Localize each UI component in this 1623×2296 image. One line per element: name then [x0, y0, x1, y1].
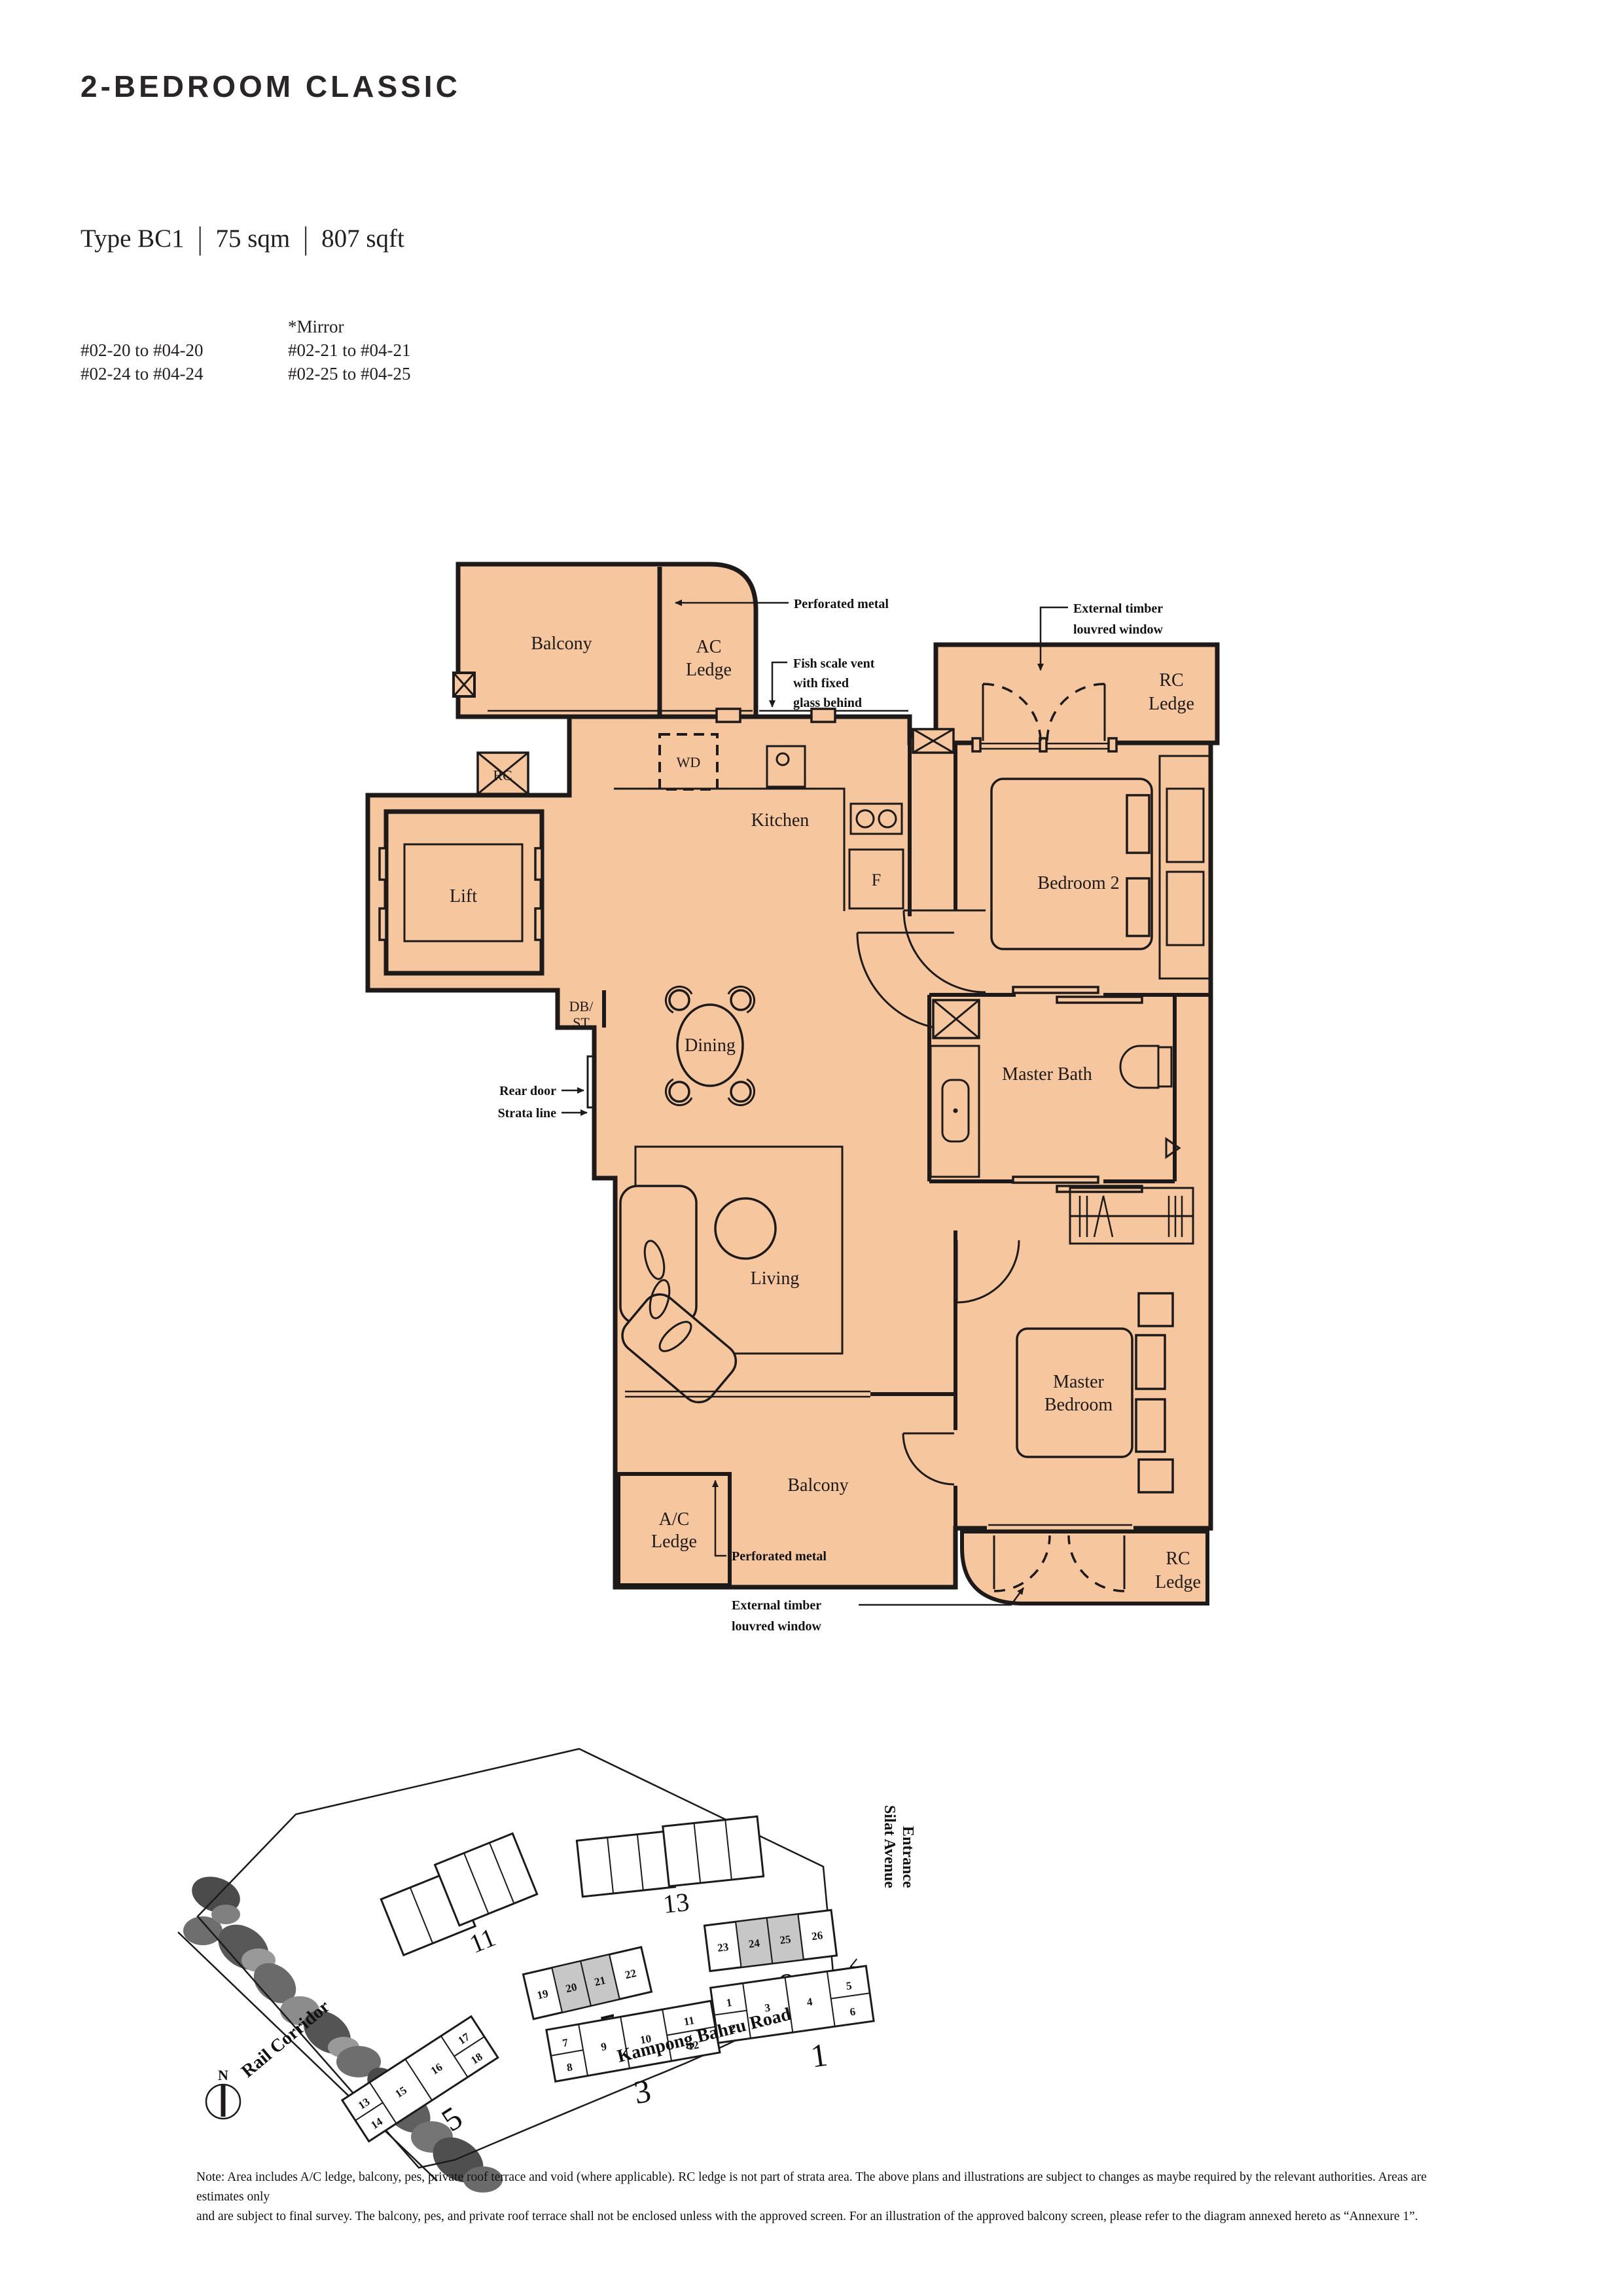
window-pier [717, 709, 740, 722]
window-post [1109, 738, 1116, 751]
balcony-top-label: Balcony [531, 634, 592, 654]
timber-br-label-2: louvred window [732, 1619, 821, 1634]
perforated-top-label: Perforated metal [794, 597, 889, 611]
rc-label: RC [493, 767, 512, 783]
dbst-label-2: ST [573, 1014, 590, 1031]
balcony-bottom-label: Balcony [787, 1475, 848, 1496]
unit-25: 25 [779, 1933, 791, 1946]
fish-scale-label-2: with fixed [793, 676, 849, 691]
ac-ledge-bottom-label-1: A/C [659, 1509, 690, 1530]
building-1-number: 1 [808, 2036, 830, 2075]
note-text: Note: Area includes A/C ledge, balcony, … [196, 2168, 1433, 2227]
window-post [972, 738, 980, 751]
entrance-label: Entrance [899, 1826, 916, 1888]
rear-door-label: Rear door [499, 1084, 556, 1098]
lift-label: Lift [450, 886, 477, 906]
coffee-table [715, 1198, 776, 1259]
fridge-label: F [872, 870, 881, 889]
basin-drain [954, 1109, 958, 1113]
building-13-number: 13 [662, 1887, 690, 1919]
sliding-door-bar [1013, 987, 1098, 993]
rc-ledge-br-label-1: RC [1166, 1549, 1190, 1569]
shower-icon [933, 1000, 979, 1038]
sliding-door-bar [1057, 997, 1142, 1003]
fish-scale-label-3: glass behind [793, 696, 862, 710]
ac-ledge-label-1: AC [696, 637, 722, 657]
rc-ledge-tr-label-2: Ledge [1149, 694, 1194, 714]
timber-tr-label-1: External timber [1073, 601, 1163, 616]
sliding-door-bar [1013, 1177, 1098, 1183]
building-11: 11 [377, 1833, 552, 1983]
bedroom2-bed [991, 779, 1152, 949]
vent-box-icon [913, 729, 954, 753]
fish-scale-label-1: Fish scale vent [793, 656, 875, 671]
unit-23: 23 [717, 1941, 729, 1954]
perforated-bottom-label: Perforated metal [732, 1549, 827, 1564]
unit-24: 24 [748, 1937, 761, 1950]
rc-ledge-tr-label-1: RC [1159, 670, 1183, 691]
building-13: 13 [577, 1816, 767, 1927]
site-map: 11 13 23 24 25 26 [178, 1749, 916, 2193]
strata-line-label: Strata line [498, 1106, 557, 1121]
bedroom2-label: Bedroom 2 [1037, 873, 1119, 893]
unit-11: 11 [683, 2014, 695, 2028]
dbst-label-1: DB/ [569, 998, 594, 1014]
floorplan-svg: RC Lift DB/ ST RC [0, 0, 1623, 2296]
building-5: 13 14 15 16 17 18 5 [342, 2017, 522, 2179]
master-bedroom-label-2: Bedroom [1044, 1395, 1113, 1415]
column-box-icon [454, 673, 474, 696]
note-line-2: and are subject to final survey. The bal… [196, 2207, 1433, 2227]
master-bath-label: Master Bath [1002, 1064, 1092, 1085]
living-label: Living [751, 1268, 800, 1289]
dining-label: Dining [685, 1035, 736, 1056]
rc-ledge-br-label-2: Ledge [1155, 1572, 1201, 1592]
ac-ledge-label-2: Ledge [686, 660, 732, 680]
timber-tr-label-2: louvred window [1073, 622, 1163, 637]
compass-icon: N [206, 2067, 240, 2119]
wd-label: WD [677, 754, 701, 770]
master-bedroom-label-1: Master [1053, 1372, 1104, 1392]
ac-ledge-bottom-label-2: Ledge [651, 1532, 697, 1552]
compass-n-label: N [218, 2067, 228, 2083]
unit-26: 26 [811, 1929, 823, 1943]
timber-br-label-1: External timber [732, 1598, 821, 1613]
brochure-page: 2-BEDROOM CLASSIC Type BC1|75 sqm|807 sq… [0, 0, 1623, 2296]
kitchen-label: Kitchen [751, 810, 810, 831]
silat-avenue-label: Silat Avenue [881, 1805, 898, 1888]
floor-plan: RC Lift DB/ ST RC [368, 564, 1217, 1634]
note-line-1: Note: Area includes A/C ledge, balcony, … [196, 2168, 1433, 2207]
window-pier [811, 709, 835, 722]
rail-corridor-line [178, 1932, 437, 2181]
